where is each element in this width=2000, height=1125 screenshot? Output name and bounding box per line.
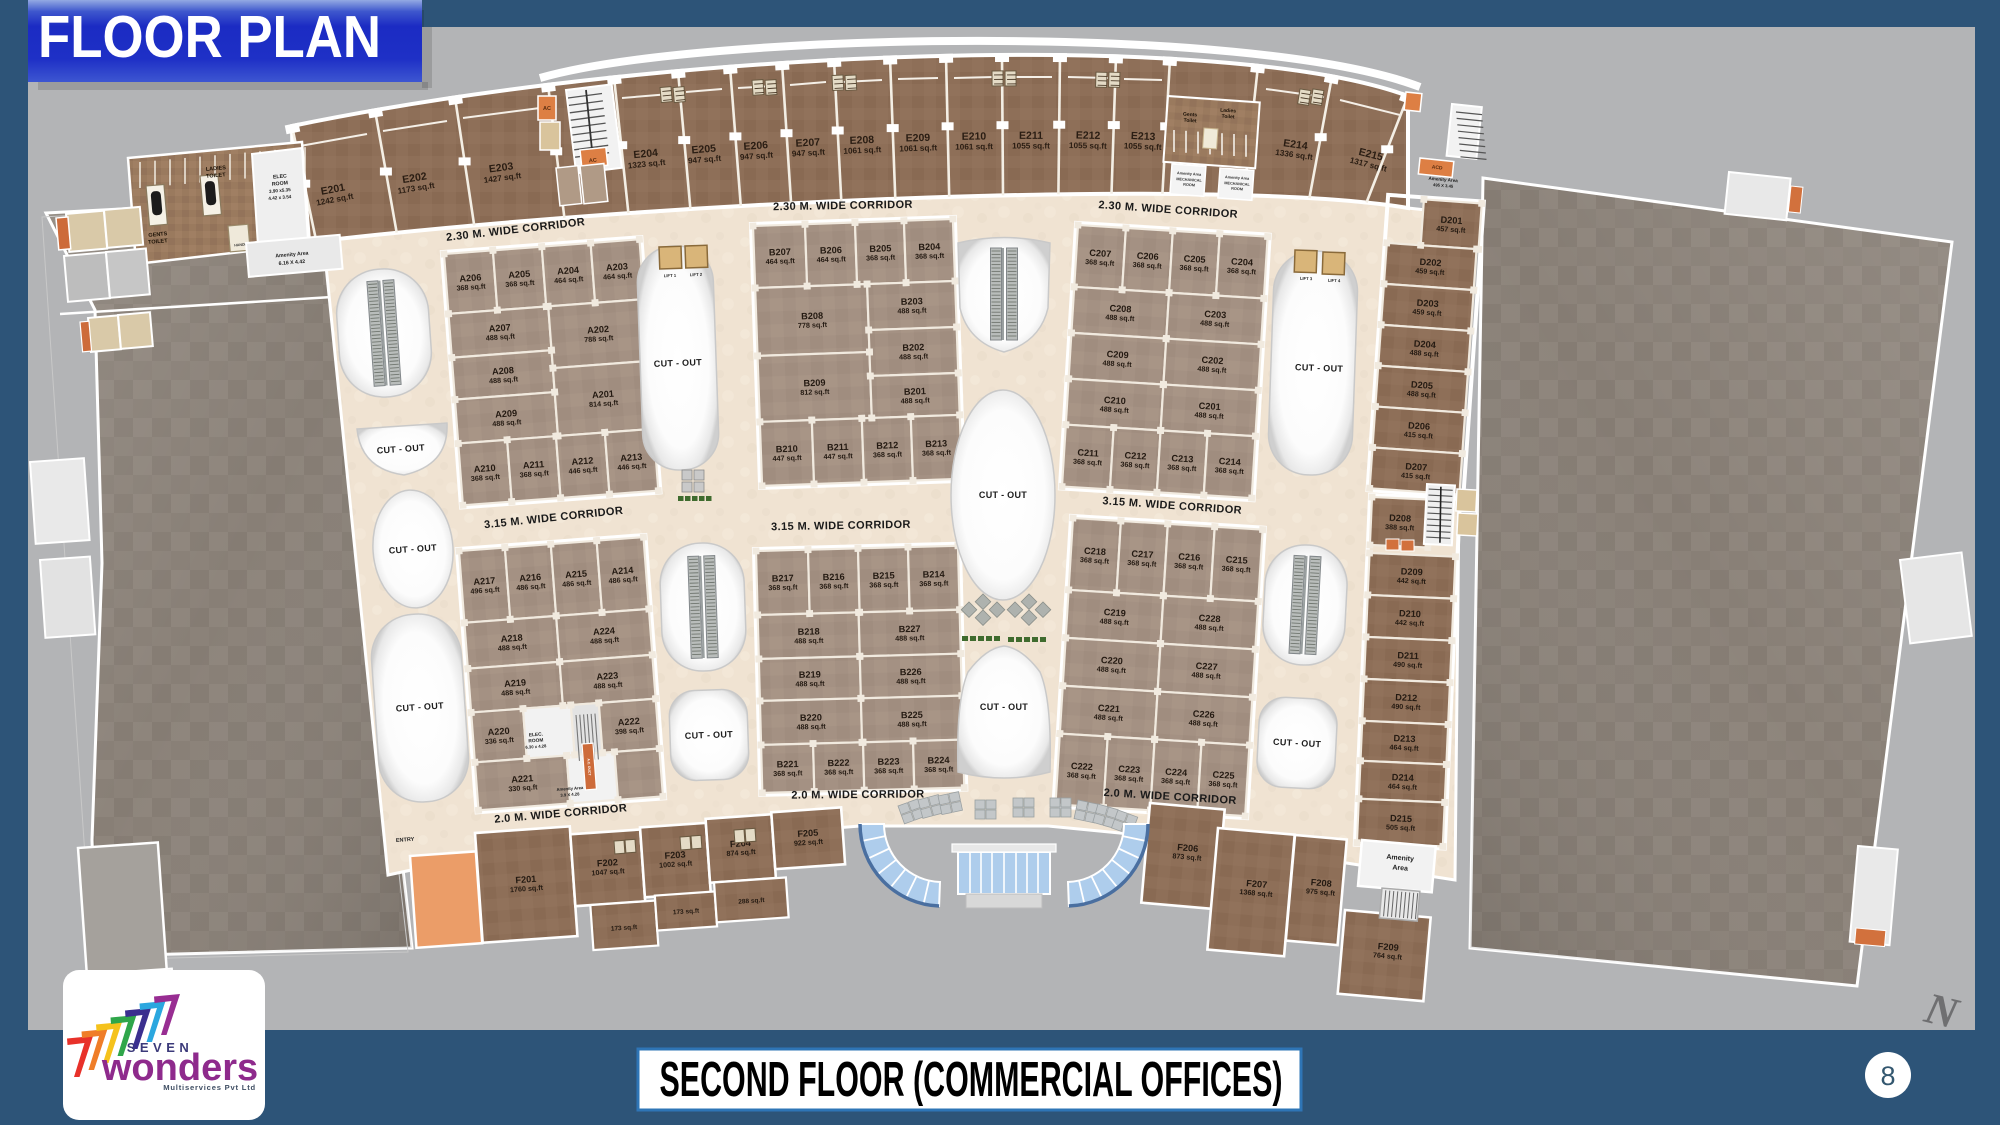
svg-text:1061 sq.ft: 1061 sq.ft bbox=[843, 145, 881, 156]
svg-text:464 sq.ft: 464 sq.ft bbox=[1388, 781, 1418, 791]
svg-text:368 sq.ft: 368 sq.ft bbox=[1080, 555, 1110, 566]
svg-text:FLOOR PLAN: FLOOR PLAN bbox=[38, 4, 381, 70]
svg-text:368 sq.ft: 368 sq.ft bbox=[1221, 564, 1251, 575]
svg-text:368 sq.ft: 368 sq.ft bbox=[869, 580, 899, 590]
svg-text:ROOM: ROOM bbox=[1183, 183, 1195, 188]
svg-text:368 sq.ft: 368 sq.ft bbox=[1132, 260, 1162, 271]
svg-text:490 sq.ft: 490 sq.ft bbox=[1391, 702, 1421, 712]
svg-text:1055 sq.ft: 1055 sq.ft bbox=[1069, 141, 1107, 151]
svg-text:488 sq.ft: 488 sq.ft bbox=[1099, 404, 1129, 415]
svg-text:Area: Area bbox=[1392, 864, 1408, 872]
svg-text:368 sq.ft: 368 sq.ft bbox=[1227, 266, 1257, 277]
svg-text:488 sq.ft: 488 sq.ft bbox=[1188, 718, 1218, 729]
svg-text:488 sq.ft: 488 sq.ft bbox=[900, 395, 930, 405]
svg-text:368 sq.ft: 368 sq.ft bbox=[773, 768, 803, 778]
svg-text:Multiservices Pvt Ltd: Multiservices Pvt Ltd bbox=[163, 1083, 256, 1092]
svg-text:ELEC: ELEC bbox=[273, 173, 288, 180]
svg-text:ELEC.: ELEC. bbox=[529, 731, 544, 738]
svg-text:778 sq.ft: 778 sq.ft bbox=[798, 320, 828, 330]
svg-text:442 sq.ft: 442 sq.ft bbox=[1397, 576, 1427, 586]
svg-text:368 sq.ft: 368 sq.ft bbox=[768, 582, 798, 592]
svg-text:388 sq.ft: 388 sq.ft bbox=[1385, 522, 1415, 532]
svg-text:488 sq.ft: 488 sq.ft bbox=[896, 676, 926, 686]
svg-text:E211: E211 bbox=[1019, 130, 1043, 142]
svg-text:AC: AC bbox=[589, 158, 598, 165]
svg-text:368 sq.ft: 368 sq.ft bbox=[1161, 776, 1191, 787]
svg-text:368 sq.ft: 368 sq.ft bbox=[1167, 462, 1197, 473]
svg-text:368 sq.ft: 368 sq.ft bbox=[824, 767, 854, 777]
svg-text:1061 sq.ft: 1061 sq.ft bbox=[899, 143, 937, 153]
svg-text:LIFT 3: LIFT 3 bbox=[1300, 276, 1313, 281]
svg-text:488 sq.ft: 488 sq.ft bbox=[796, 722, 826, 732]
svg-text:ROOM: ROOM bbox=[1231, 187, 1243, 192]
svg-text:368 sq.ft: 368 sq.ft bbox=[819, 581, 849, 591]
svg-text:CUT - OUT: CUT - OUT bbox=[1295, 362, 1344, 374]
svg-text:368 sq.ft: 368 sq.ft bbox=[919, 578, 949, 588]
svg-text:488 sq.ft: 488 sq.ft bbox=[1194, 410, 1224, 421]
svg-text:368 sq.ft: 368 sq.ft bbox=[1174, 561, 1204, 572]
svg-text:368 sq.ft: 368 sq.ft bbox=[874, 766, 904, 776]
svg-text:488 sq.ft: 488 sq.ft bbox=[1099, 616, 1129, 627]
svg-text:2.0 M. WIDE CORRIDOR: 2.0 M. WIDE CORRIDOR bbox=[791, 788, 924, 801]
svg-text:368 sq.ft: 368 sq.ft bbox=[924, 764, 954, 774]
svg-text:CUT - OUT: CUT - OUT bbox=[979, 490, 1027, 500]
svg-text:488 sq.ft: 488 sq.ft bbox=[895, 633, 925, 643]
svg-text:E212: E212 bbox=[1076, 130, 1101, 143]
svg-text:488 sq.ft: 488 sq.ft bbox=[899, 351, 929, 361]
svg-text:464 sq.ft: 464 sq.ft bbox=[1389, 743, 1419, 753]
svg-text:368 sq.ft: 368 sq.ft bbox=[1073, 457, 1103, 468]
svg-text:368 sq.ft: 368 sq.ft bbox=[1179, 263, 1209, 274]
svg-text:464 sq.ft: 464 sq.ft bbox=[816, 254, 846, 264]
svg-text:488 sq.ft: 488 sq.ft bbox=[1096, 664, 1126, 675]
svg-text:442 sq.ft: 442 sq.ft bbox=[1395, 618, 1425, 628]
svg-text:812 sq.ft: 812 sq.ft bbox=[800, 387, 830, 397]
svg-text:368 sq.ft: 368 sq.ft bbox=[922, 448, 952, 458]
svg-text:E210: E210 bbox=[962, 131, 987, 143]
svg-text:SECOND FLOOR (COMMERCIAL OFFIC: SECOND FLOOR (COMMERCIAL OFFICES) bbox=[660, 1053, 1283, 1107]
svg-text:488 sq.ft: 488 sq.ft bbox=[1105, 312, 1135, 323]
svg-text:368 sq.ft: 368 sq.ft bbox=[1127, 558, 1157, 569]
svg-text:490 sq.ft: 490 sq.ft bbox=[1393, 660, 1423, 670]
svg-text:LIFT 1: LIFT 1 bbox=[664, 273, 677, 278]
svg-text:1055 sq.ft: 1055 sq.ft bbox=[1124, 141, 1162, 152]
svg-text:488 sq.ft: 488 sq.ft bbox=[1197, 364, 1227, 375]
svg-text:488 sq.ft: 488 sq.ft bbox=[1094, 712, 1124, 723]
svg-text:368 sq.ft: 368 sq.ft bbox=[1066, 770, 1096, 781]
svg-text:CUT - OUT: CUT - OUT bbox=[685, 729, 734, 741]
svg-text:1055 sq.ft: 1055 sq.ft bbox=[1012, 141, 1050, 150]
svg-text:Toilet: Toilet bbox=[1221, 114, 1235, 121]
svg-text:447 sq.ft: 447 sq.ft bbox=[823, 451, 853, 461]
svg-text:368 sq.ft: 368 sq.ft bbox=[866, 253, 896, 263]
svg-text:368 sq.ft: 368 sq.ft bbox=[1114, 773, 1144, 784]
svg-text:368 sq.ft: 368 sq.ft bbox=[1120, 460, 1150, 471]
svg-text:ACD: ACD bbox=[1431, 164, 1443, 171]
svg-text:368 sq.ft: 368 sq.ft bbox=[1214, 465, 1244, 476]
svg-text:3.15 M. WIDE CORRIDOR: 3.15 M. WIDE CORRIDOR bbox=[771, 519, 911, 533]
svg-text:LIFT 4: LIFT 4 bbox=[1328, 278, 1341, 283]
svg-text:368 sq.ft: 368 sq.ft bbox=[915, 251, 945, 261]
svg-text:488 sq.ft: 488 sq.ft bbox=[1194, 622, 1224, 633]
svg-text:464 sq.ft: 464 sq.ft bbox=[766, 256, 796, 266]
svg-text:488 sq.ft: 488 sq.ft bbox=[794, 636, 824, 646]
svg-text:488 sq.ft: 488 sq.ft bbox=[795, 679, 825, 689]
svg-text:2.30 M. WIDE CORRIDOR: 2.30 M. WIDE CORRIDOR bbox=[773, 199, 913, 213]
svg-text:CUT - OUT: CUT - OUT bbox=[980, 702, 1028, 712]
svg-text:8: 8 bbox=[1880, 1061, 1895, 1091]
svg-text:488 sq.ft: 488 sq.ft bbox=[1102, 358, 1132, 369]
svg-text:AC: AC bbox=[543, 106, 551, 112]
svg-text:505 sq.ft: 505 sq.ft bbox=[1386, 822, 1416, 832]
svg-text:488 sq.ft: 488 sq.ft bbox=[1200, 318, 1230, 329]
svg-text:368 sq.ft: 368 sq.ft bbox=[873, 449, 903, 459]
svg-text:488 sq.ft: 488 sq.ft bbox=[897, 305, 927, 315]
svg-text:CUT - OUT: CUT - OUT bbox=[654, 357, 703, 369]
svg-text:LIFT 2: LIFT 2 bbox=[690, 272, 703, 277]
svg-text:447 sq.ft: 447 sq.ft bbox=[772, 453, 802, 463]
svg-text:Toilet: Toilet bbox=[1183, 118, 1197, 125]
svg-text:1061 sq.ft: 1061 sq.ft bbox=[955, 142, 993, 152]
svg-text:368 sq.ft: 368 sq.ft bbox=[1085, 257, 1115, 268]
svg-text:368 sq.ft: 368 sq.ft bbox=[1208, 779, 1238, 790]
svg-text:488 sq.ft: 488 sq.ft bbox=[1191, 670, 1221, 681]
svg-text:488 sq.ft: 488 sq.ft bbox=[897, 719, 927, 729]
